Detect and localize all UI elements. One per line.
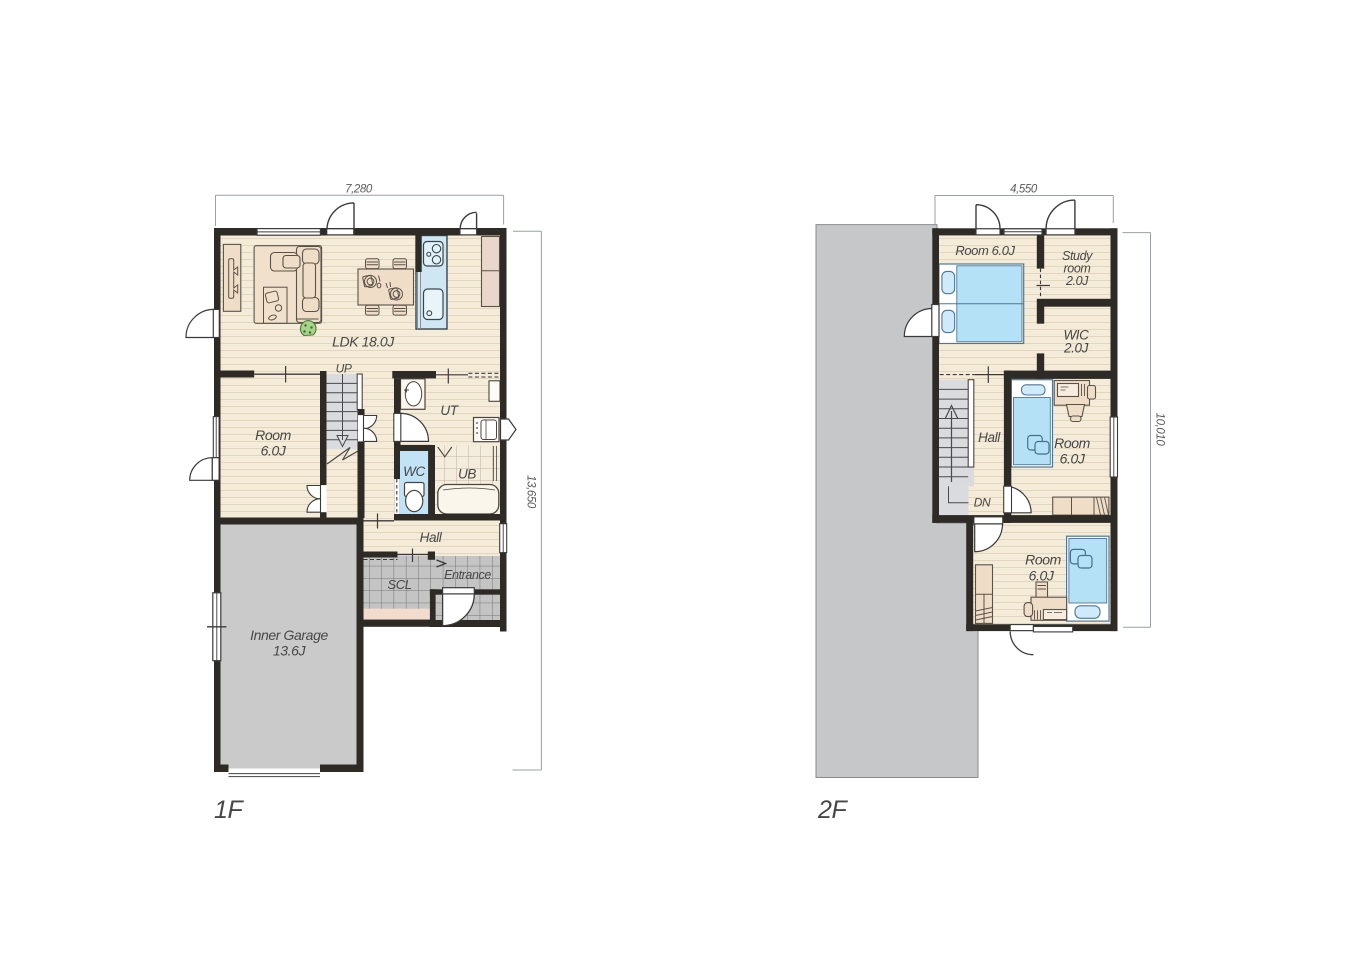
svg-text:UP: UP	[336, 362, 352, 376]
svg-text:LDK 18.0J: LDK 18.0J	[332, 334, 395, 350]
svg-text:Room: Room	[1054, 435, 1090, 451]
svg-text:UT: UT	[440, 403, 459, 418]
svg-text:6.0J: 6.0J	[1029, 568, 1055, 584]
svg-text:1F: 1F	[214, 796, 245, 824]
svg-text:4,550: 4,550	[1010, 184, 1038, 196]
svg-text:UB: UB	[458, 467, 476, 482]
svg-text:Room 6.0J: Room 6.0J	[955, 243, 1015, 258]
svg-text:Hall: Hall	[420, 530, 443, 545]
svg-text:7,280: 7,280	[345, 184, 373, 196]
svg-text:13,650: 13,650	[525, 475, 537, 509]
svg-text:Room: Room	[1025, 552, 1061, 568]
svg-text:2F: 2F	[817, 796, 849, 824]
svg-text:Hall: Hall	[978, 430, 1001, 445]
svg-text:SCL: SCL	[387, 577, 411, 592]
svg-text:6.0J: 6.0J	[261, 443, 287, 459]
svg-text:Inner Garage: Inner Garage	[250, 627, 328, 643]
svg-text:13.6J: 13.6J	[273, 643, 307, 659]
svg-text:Entrance: Entrance	[444, 568, 491, 582]
svg-text:Room: Room	[255, 427, 291, 443]
svg-text:10,010: 10,010	[1154, 413, 1166, 447]
svg-text:6.0J: 6.0J	[1060, 451, 1086, 467]
svg-text:2.0J: 2.0J	[1063, 341, 1089, 356]
svg-text:2.0J: 2.0J	[1065, 274, 1089, 288]
svg-text:DN: DN	[974, 496, 991, 510]
svg-text:WC: WC	[403, 464, 425, 479]
